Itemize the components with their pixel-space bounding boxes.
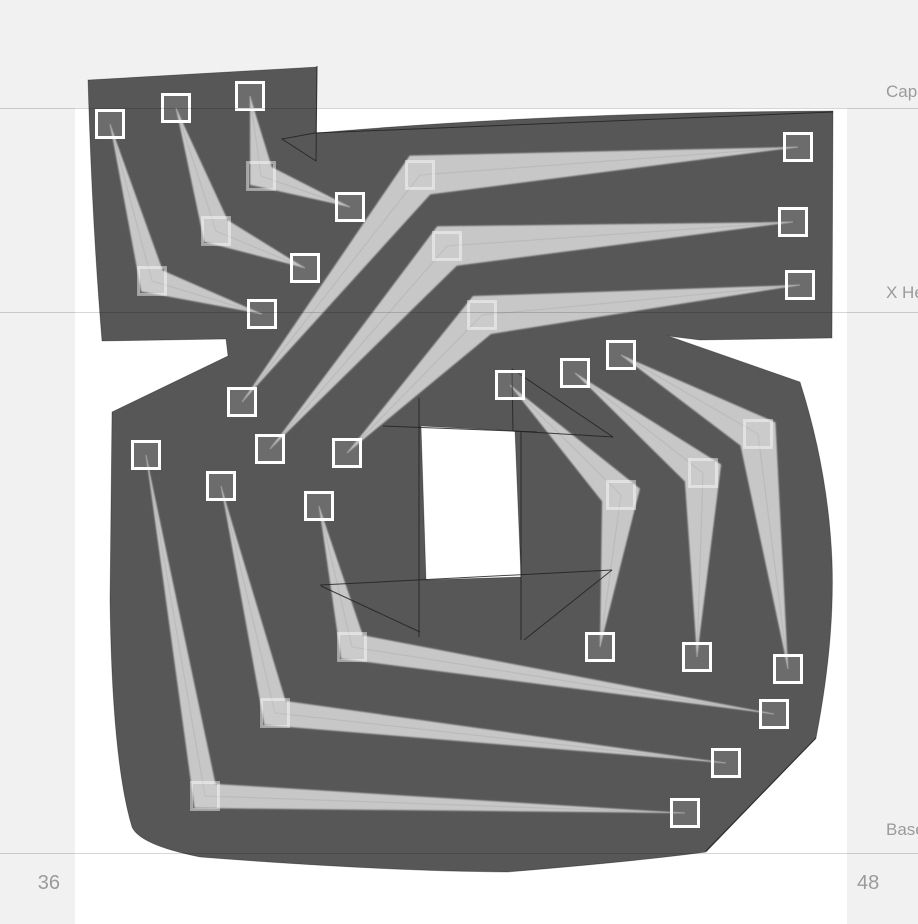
- node-handle-11b[interactable]: [713, 750, 740, 777]
- elbow-handle-10[interactable]: [192, 783, 219, 810]
- elbow-handle-3[interactable]: [248, 163, 275, 190]
- node-handle-1b[interactable]: [249, 301, 276, 328]
- elbow-handle-7[interactable]: [608, 482, 635, 509]
- elbow-handle-5[interactable]: [434, 233, 461, 260]
- glyph-canvas[interactable]: [0, 0, 918, 924]
- node-handle-4b[interactable]: [229, 389, 256, 416]
- elbow-handle-4[interactable]: [407, 162, 434, 189]
- node-handle-3a[interactable]: [237, 83, 264, 110]
- node-handle-1a[interactable]: [97, 111, 124, 138]
- node-handle-7a[interactable]: [497, 372, 524, 399]
- elbow-handle-8[interactable]: [690, 460, 717, 487]
- node-handle-5a[interactable]: [780, 209, 807, 236]
- baseline-label: Baseline: [886, 820, 918, 840]
- node-handle-8b[interactable]: [684, 644, 711, 671]
- node-handle-9b[interactable]: [775, 656, 802, 683]
- node-handle-2b[interactable]: [292, 255, 319, 282]
- node-handle-7b[interactable]: [587, 634, 614, 661]
- x-height-label: X Height: [886, 283, 918, 303]
- elbow-handle-2[interactable]: [203, 218, 230, 245]
- node-handle-3b[interactable]: [337, 194, 364, 221]
- elbow-handle-12[interactable]: [339, 634, 366, 661]
- elbow-handle-9[interactable]: [745, 421, 772, 448]
- node-handle-12a[interactable]: [306, 493, 333, 520]
- node-handle-5b[interactable]: [257, 436, 284, 463]
- node-handle-12b[interactable]: [761, 701, 788, 728]
- elbow-handle-11[interactable]: [262, 700, 289, 727]
- node-handle-6b[interactable]: [334, 440, 361, 467]
- node-handle-8a[interactable]: [562, 360, 589, 387]
- node-handle-10a[interactable]: [133, 442, 160, 469]
- glyph-editor-window: { "canvas": { "width": 918, "height": 92…: [0, 0, 918, 924]
- left-metric-value: 36: [0, 871, 60, 895]
- node-handle-11a[interactable]: [208, 473, 235, 500]
- node-handle-10b[interactable]: [672, 800, 699, 827]
- node-handle-9a[interactable]: [608, 342, 635, 369]
- cap-height-label: Cap Height: [886, 82, 918, 102]
- right-metric-value: 48: [857, 871, 917, 895]
- elbow-handle-1[interactable]: [139, 268, 166, 295]
- node-handle-4a[interactable]: [785, 134, 812, 161]
- elbow-handle-6[interactable]: [469, 302, 496, 329]
- node-handle-6a[interactable]: [787, 272, 814, 299]
